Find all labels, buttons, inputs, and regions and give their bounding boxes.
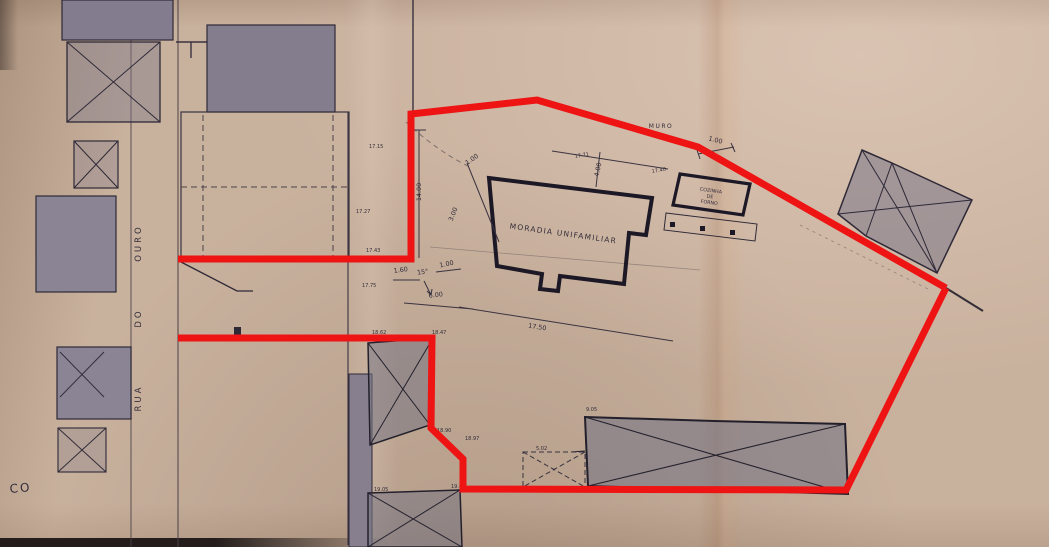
building-west-2-annex	[67, 42, 160, 122]
building-west-6-annex	[58, 428, 106, 472]
svg-text:17.27: 17.27	[356, 209, 370, 215]
house-label: MORADIA UNIFAMILIAR	[509, 222, 617, 246]
building-west-5	[57, 347, 131, 419]
retaining-wall-line	[181, 262, 253, 291]
svg-text:17.75: 17.75	[362, 283, 376, 289]
svg-text:DO: DO	[134, 308, 144, 327]
kitchen-porch	[664, 213, 757, 241]
corner-text-fragment: CO	[9, 480, 32, 496]
svg-text:RUA: RUA	[134, 385, 144, 412]
svg-text:1.00: 1.00	[439, 259, 455, 270]
terrain-dashed-curve	[406, 122, 472, 168]
svg-text:4.00: 4.00	[593, 162, 604, 178]
svg-text:19.05: 19.05	[374, 487, 388, 493]
svg-text:18.97: 18.97	[465, 436, 479, 442]
svg-text:17.43: 17.43	[366, 248, 380, 254]
building-northeast-dark	[207, 25, 335, 112]
svg-text:6.00: 6.00	[428, 290, 443, 299]
proposed-annex-dashed	[523, 452, 585, 487]
svg-text:17.40: 17.40	[651, 167, 666, 175]
svg-text:15°: 15°	[417, 267, 429, 276]
wall-label: MURO	[649, 123, 673, 130]
site-plan-drawing: MORADIA UNIFAMILIAR COZINHA DE FORNO 14.…	[0, 0, 1049, 547]
svg-text:14.00: 14.00	[415, 183, 423, 201]
svg-text:9.05: 9.05	[586, 407, 597, 413]
svg-text:DE: DE	[706, 194, 714, 201]
scanned-site-plan: MORADIA UNIFAMILIAR COZINHA DE FORNO 14.…	[0, 0, 1049, 547]
svg-text:1.00: 1.00	[708, 134, 724, 145]
street-name: OURO DO RUA	[134, 224, 144, 411]
parcel-outline	[181, 112, 349, 258]
wall-continuation-line	[946, 288, 983, 311]
svg-text:OURO: OURO	[134, 224, 144, 262]
building-south-mid	[368, 338, 433, 445]
building-west-1	[62, 0, 173, 40]
building-west-4	[36, 196, 116, 292]
terrain-contour-line	[430, 247, 700, 270]
svg-text:FORNO: FORNO	[700, 199, 718, 207]
svg-text:5.02: 5.02	[536, 446, 547, 452]
kitchen-label: COZINHA DE FORNO	[698, 187, 723, 208]
red-boundary-upper	[178, 100, 946, 288]
building-west-3-annex	[74, 141, 118, 188]
svg-text:3.00: 3.00	[447, 206, 460, 222]
building-south-large	[571, 417, 848, 494]
svg-text:1.00: 1.00	[464, 152, 480, 167]
svg-text:17.15: 17.15	[369, 144, 383, 150]
parcel-dashed-subdivision	[181, 115, 348, 258]
svg-text:17.50: 17.50	[528, 322, 547, 333]
building-south-lower	[368, 490, 462, 547]
street-tee-mark	[176, 42, 208, 58]
svg-text:17.71: 17.71	[574, 152, 589, 160]
building-east-rotated	[838, 150, 972, 273]
svg-text:1.60: 1.60	[393, 265, 408, 275]
